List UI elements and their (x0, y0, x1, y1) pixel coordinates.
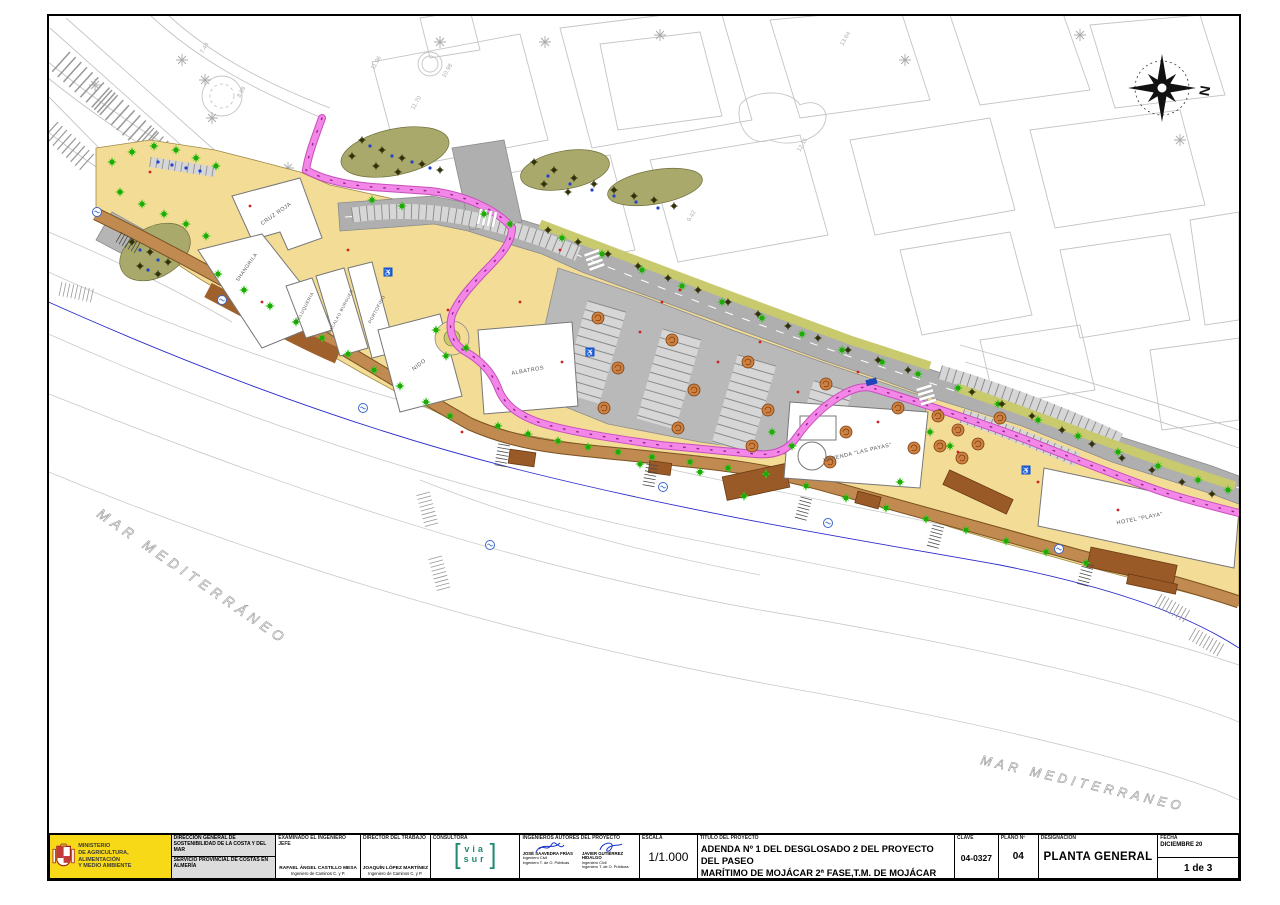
servicio-provincial-label: SERVICIO PROVINCIAL DE COSTAS EN ALMERÍA (172, 857, 276, 878)
ministry-cell: MINISTERIO DE AGRICULTURA, ALIMENTACIÓN … (50, 835, 172, 878)
sea-label-left: MAR MEDITERRÁNEO (94, 505, 291, 647)
director-title: Ingeniero de Caminos C. y P. (368, 871, 422, 876)
svg-text:7.44: 7.44 (200, 41, 211, 55)
engineer-2: JAVIER GUTIÉRREZ HIDALGO Ingeniero Civil… (582, 842, 637, 870)
clave-value: 04-0327 (955, 853, 998, 863)
examinado-header: EXAMINADO EL INGENIERO JEFE (276, 835, 360, 847)
escala-cell: ESCALA 1/1.000 (640, 835, 698, 878)
ministry-line2: DE AGRICULTURA, ALIMENTACIÓN (78, 850, 168, 864)
svg-text:11.70: 11.70 (411, 95, 424, 111)
svg-text:9.42: 9.42 (687, 209, 698, 223)
direccion-general-label: DIRECCIÓN GENERAL DE SOSTENIBILIDAD DE L… (172, 835, 276, 857)
plano-value: 04 (999, 851, 1038, 862)
plano-header: PLANO Nº (999, 835, 1038, 842)
svg-text:11.06: 11.06 (371, 55, 384, 71)
viasur-logo: [ via sur ] (431, 845, 520, 865)
north-label: N (1196, 84, 1214, 97)
compass-rose: N (1128, 54, 1214, 122)
ministry-line1: MINISTERIO (78, 843, 168, 850)
svg-text:10.98: 10.98 (442, 62, 455, 79)
fecha-cell: FECHA DICIEMBRE 20 1 de 3 (1158, 835, 1238, 878)
designacion-value: PLANTA GENERAL (1039, 851, 1158, 863)
sea-label-right: MAR MEDITERRANEO (979, 752, 1186, 814)
escala-value: 1/1.000 (640, 850, 697, 864)
ministry-line3: Y MEDIO AMBIENTE (78, 863, 168, 870)
director-header: DIRECTOR DEL TRABAJO (361, 835, 430, 842)
titulo-line2: MARÍTIMO DE MOJÁCAR 2ª FASE,T.M. DE MOJÁ… (701, 867, 951, 878)
examinado-title: Ingeniero de Caminos C. y P. (291, 871, 345, 876)
consultora-cell: CONSULTORA [ via sur ] (431, 835, 521, 878)
escala-header: ESCALA (640, 835, 697, 842)
titulo-cell: TITULO DEL PROYECTO ADENDA Nº 1 DEL DESG… (698, 835, 955, 878)
designacion-cell: DESIGNACIÓN PLANTA GENERAL (1039, 835, 1159, 878)
viasur-logo-bottom: sur (464, 855, 487, 864)
spain-coat-of-arms (52, 843, 75, 871)
clave-header: CLAVE (955, 835, 998, 842)
svg-text:13.64: 13.64 (840, 30, 853, 47)
sheet-number: 1 de 3 (1158, 857, 1238, 878)
building-las-payas (784, 402, 928, 488)
drawing-sheet: ♿ (0, 0, 1280, 905)
plan-canvas: ♿ (0, 0, 1280, 905)
clave-cell: CLAVE 04-0327 (955, 835, 999, 878)
designacion-header: DESIGNACIÓN (1039, 835, 1158, 842)
director-cell: DIRECTOR DEL TRABAJO JOAQUÍN LÓPEZ MARTÍ… (361, 835, 431, 878)
consultora-header: CONSULTORA (431, 835, 520, 842)
examinado-cell: EXAMINADO EL INGENIERO JEFE RAFAEL ÁNGEL… (276, 835, 361, 878)
direccion-cell: DIRECCIÓN GENERAL DE SOSTENIBILIDAD DE L… (172, 835, 277, 878)
title-block: MINISTERIO DE AGRICULTURA, ALIMENTACIÓN … (48, 833, 1240, 880)
autores-cell: INGENIEROS AUTORES DEL PROYECTO JOSÉ SAA… (520, 835, 640, 878)
fecha-value: DICIEMBRE 20 (1158, 842, 1238, 848)
titulo-line1: ADENDA Nº 1 DEL DESGLOSADO 2 DEL PROYECT… (701, 843, 951, 867)
sea-labels: MAR MEDITERRÁNEO MAR MEDITERRANEO (94, 505, 1186, 814)
svg-text:8.99: 8.99 (237, 85, 248, 99)
engineer-1-line2: Ingeniero T. de O. Públicas (523, 861, 578, 865)
engineer-2-line2: Ingeniero T. de O. Públicas (582, 865, 637, 869)
plano-cell: PLANO Nº 04 (999, 835, 1039, 878)
engineer-1: JOSÉ SAAVEDRA FRÍAS Ingeniero Civil Inge… (523, 842, 578, 870)
